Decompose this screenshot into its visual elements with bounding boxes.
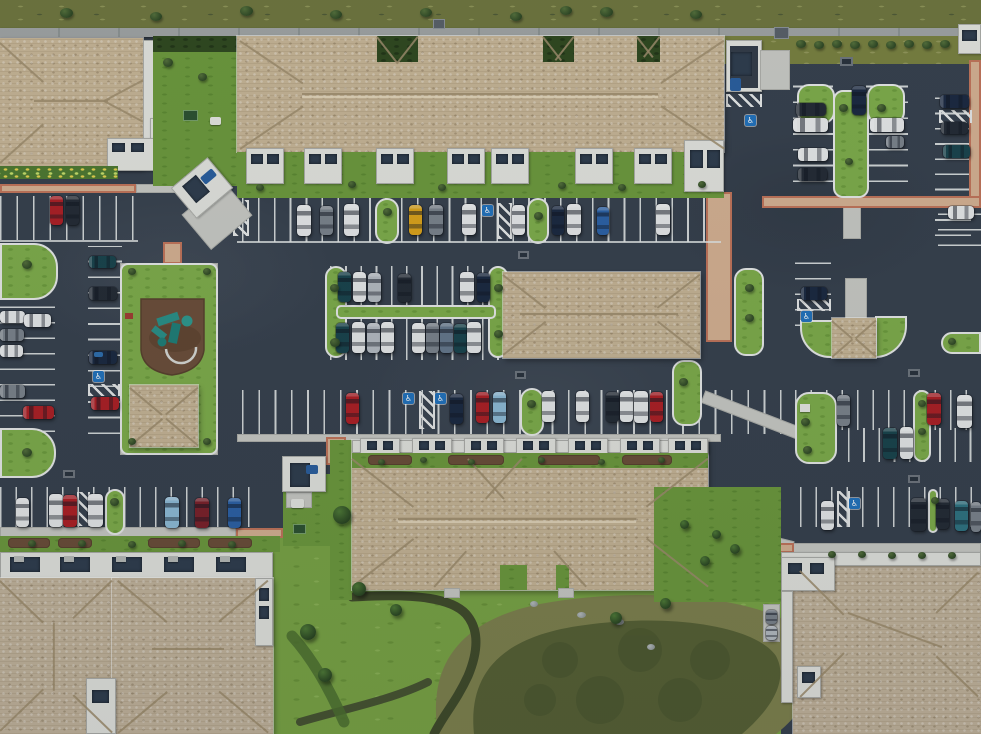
shrub [948,338,956,345]
blue-fixture [306,465,318,474]
car [656,204,670,235]
car [338,272,351,302]
shrub [203,268,211,275]
dark-patio-inset [707,150,720,168]
shrub [745,284,754,292]
shrub [510,12,522,21]
concrete-pad [444,588,460,598]
shrub [698,181,706,188]
shrub [828,551,836,558]
shrub [22,260,32,269]
grass-island [672,360,702,426]
dark-patio-inset [267,154,279,164]
shrub [845,158,853,165]
car [440,323,453,353]
car [650,392,663,422]
dark-patio-inset [523,441,533,450]
storm-drain [908,475,920,483]
shrub [110,498,119,506]
mulch-bed [538,455,600,465]
car [477,273,490,302]
shrub [330,338,340,347]
car [49,494,63,527]
car [870,118,904,132]
handicap-stall-icon: ♿ [482,205,493,216]
storm-drain [515,371,526,379]
car [971,502,981,532]
tree [318,668,332,682]
hedge-strip [153,36,237,52]
white-wall-structure [620,438,660,454]
white-wall-structure [516,438,556,454]
car [228,498,241,528]
no-parking-hatch [726,94,762,107]
shrub [150,12,162,21]
shrub [558,182,566,189]
dark-patio-inset [655,154,667,164]
shrub [494,330,503,338]
utility-box [774,27,789,39]
car [911,498,926,531]
car [837,395,850,426]
car [927,393,941,425]
paver-crosswalk [706,192,732,342]
dark-patio-inset [487,441,497,450]
shrub [745,314,754,322]
grass-strip [654,487,781,602]
shrub [256,184,264,191]
dark-patio-inset [471,441,481,450]
tree [610,612,622,624]
curb-line [237,241,721,243]
sign-board [800,404,810,412]
car [512,205,525,235]
car [0,345,23,357]
car [886,136,904,148]
dark-patio-inset [381,154,393,164]
aerial-photo: ♿♿♿♿♿♿♿ [0,0,981,734]
shrub [527,400,536,408]
car [462,204,476,235]
car [353,272,366,302]
car [542,391,555,422]
shrub [679,378,688,386]
dark-patio-inset [643,441,653,450]
boulder [577,612,586,618]
white-wall-structure [412,438,452,454]
dark-patio-inset [810,563,824,574]
dark-patio-inset [397,154,409,164]
dark-patio-inset [962,30,977,41]
car [620,391,633,422]
utility-box [433,19,445,29]
car [957,395,972,428]
ac-unit [14,556,24,562]
grass-island [375,198,399,244]
roof-ridge [398,521,636,523]
car [552,206,564,235]
handicap-stall-icon: ♿ [801,311,812,322]
car [948,206,974,219]
ac-unit [64,556,74,562]
tree [680,520,689,529]
dark-patio-inset [575,441,585,450]
shrub [240,6,253,16]
car [165,497,179,528]
car [50,196,63,225]
white-wall-structure [86,678,116,734]
shrub [60,8,73,18]
shrub [931,497,939,504]
dark-patio-inset [639,154,651,164]
no-parking-hatch [837,491,850,527]
car [426,323,439,353]
car [943,145,970,158]
car [0,385,25,398]
no-parking-hatch [88,384,120,396]
shrub [420,8,432,17]
sidewalk [843,205,861,239]
dark-patio-inset [496,154,508,164]
storm-drain [63,470,75,478]
car [450,394,463,424]
dark-patio-inset [675,441,685,450]
shrub [438,184,446,191]
dark-patio-inset [325,154,337,164]
dark-patio-inset [591,441,601,450]
car [460,272,474,302]
storm-drain [908,369,920,377]
mulch-bed [448,455,504,465]
car [606,392,619,422]
car [476,392,489,423]
shrub [494,284,503,292]
shrub [78,540,86,547]
dark-patio-inset [419,441,429,450]
building-roof [503,272,700,358]
car [801,287,827,300]
car [955,501,968,531]
car [412,323,425,353]
roof-ridge [34,100,108,102]
car [91,397,119,410]
white-bench [210,117,221,125]
dark-patio-inset [112,143,125,152]
car [297,205,311,236]
handicap-stall-icon: ♿ [849,498,860,509]
grass-island [734,268,764,356]
shrub [330,284,339,292]
shrub [420,457,427,463]
car [796,103,826,116]
shrub [839,104,848,112]
shrub [940,40,950,48]
shrub [28,540,36,547]
tree [352,582,366,596]
shrub [203,438,211,445]
curb-line [0,240,138,242]
handicap-stall-icon: ♿ [745,115,756,126]
car [576,391,589,422]
shrub [163,58,173,67]
car [320,206,333,235]
white-wall-structure [464,438,504,454]
car [852,86,866,115]
green-utility-box [183,110,198,121]
tree [712,530,721,539]
car [567,204,581,235]
mulch-bed [58,538,92,548]
shrub [128,541,136,548]
dark-patio-inset [259,606,269,619]
car [24,314,51,327]
car [766,610,777,624]
grass-island [941,332,981,354]
no-parking-hatch [497,203,512,239]
shrub [618,184,626,191]
dark-patio-inset [512,154,524,164]
grass-island [336,305,496,319]
paver-crosswalk [0,184,136,193]
shrub [378,459,385,465]
shrub [796,40,806,48]
roof-ridge [398,518,636,520]
shrub [803,446,812,454]
car [0,311,25,323]
car [88,494,103,527]
car [63,495,77,527]
car [381,322,394,353]
car [793,118,828,132]
shrub [922,41,932,49]
shrub [868,40,878,48]
white-wall-structure [781,591,793,703]
building-roof [112,578,273,734]
car [900,427,913,459]
ac-unit [116,556,126,562]
grass-island [105,489,125,535]
car [352,322,365,353]
car [493,392,506,423]
dark-patio-inset [452,154,464,164]
car [429,205,443,235]
dark-patio-inset [539,441,549,450]
car [398,274,411,302]
car [23,406,54,419]
concrete-pad [558,588,574,598]
roof-ridge [152,648,224,650]
car [940,95,969,108]
white-bench [291,499,304,508]
sidewalk [845,278,867,320]
grass-strip [500,565,527,590]
dark-patio-inset [580,154,592,164]
shrub [128,268,136,275]
car [798,168,827,181]
dark-patio-inset [596,154,608,164]
boulder [647,644,655,650]
tree [390,604,402,616]
shrub [383,208,392,216]
car [368,273,381,302]
car [409,205,422,235]
shrub [948,552,956,559]
shrub [228,541,236,548]
car [766,626,777,640]
dark-patio-inset [131,143,144,152]
car [195,498,209,528]
shrub [918,552,926,559]
dark-patio-inset [92,690,109,703]
car [346,393,359,424]
dark-patio-inset [367,441,377,450]
storm-drain [840,57,853,66]
boulder [530,601,538,607]
storm-drain [518,251,529,259]
shrub [814,41,824,49]
no-parking-hatch [797,299,831,311]
no-parking-hatch [419,391,435,429]
dark-patio-inset [691,441,701,450]
flower-bed [0,166,118,179]
shrub [904,40,914,48]
car [467,322,481,353]
shrub [178,540,186,547]
shrub [918,428,926,435]
shrub [198,73,207,81]
shrub [538,457,545,463]
shrub [560,6,572,15]
white-wall-structure [668,438,708,454]
shrub [348,181,356,188]
shrub [886,41,896,49]
red-sign [125,313,133,319]
green-utility-box [293,524,306,534]
grass-island [520,388,544,436]
shrub [918,400,926,407]
parking-stall-lines [242,198,720,242]
grass-island [795,392,837,464]
dark-patio-inset [309,154,321,164]
shrub [534,212,543,220]
shrub [888,552,896,559]
car [0,329,24,341]
tree [300,624,316,640]
car [941,122,968,134]
car [66,196,79,225]
shrub [330,10,342,19]
handicap-stall-icon: ♿ [403,393,414,404]
dark-patio-inset [259,588,269,601]
paver-crosswalk [163,242,182,264]
car [89,256,116,268]
mulch-bed [148,538,200,548]
dark-patio-inset [383,441,393,450]
roof-ridge [520,313,678,315]
white-wall-structure [568,438,608,454]
top-vegetation-band [0,0,981,30]
handicap-stall-icon: ♿ [93,371,104,382]
paver-crosswalk [969,60,981,198]
shrub [128,438,136,445]
car [367,323,380,353]
car [936,499,949,529]
white-wall-structure [360,438,400,454]
tree [700,556,710,566]
shrub [877,104,886,112]
car [821,501,834,530]
car [597,207,609,235]
shrub [690,10,702,19]
car [16,498,29,527]
ac-unit [168,556,178,562]
dark-patio-inset [690,150,703,168]
tree [660,598,671,609]
shrub [850,41,860,49]
blue-kayak [94,352,103,357]
shrub [801,418,810,426]
car [634,391,648,423]
ac-unit [220,556,230,562]
shrub [468,459,475,465]
shrub [832,40,842,48]
shrub [858,551,866,558]
dark-patio-inset [435,441,445,450]
paver-crosswalk [762,196,981,208]
grass-strip [556,565,569,590]
shrub [22,448,32,457]
dark-patio-inset [468,154,480,164]
car [454,324,467,353]
dark-patio-inset [251,154,263,164]
mulch-bed [368,455,412,465]
dark-patio-inset [731,52,752,76]
car [883,428,897,459]
grass-island [527,198,549,244]
blue-fixture [730,78,741,91]
hedge-strip [377,36,418,62]
shrub [600,7,613,17]
grass-island [0,243,58,300]
handicap-stall-icon: ♿ [435,393,446,404]
concrete-pad [760,50,790,90]
car [344,204,359,236]
roof-ridge [302,93,658,95]
roof-ridge [302,96,658,98]
tree [730,544,740,554]
car [89,287,117,300]
shrub [658,457,665,463]
car [798,148,828,161]
parking-stall-lines [0,487,255,527]
dark-patio-inset [627,441,637,450]
tree [333,506,351,524]
shrub [598,459,605,465]
roof-ridge [53,623,55,691]
